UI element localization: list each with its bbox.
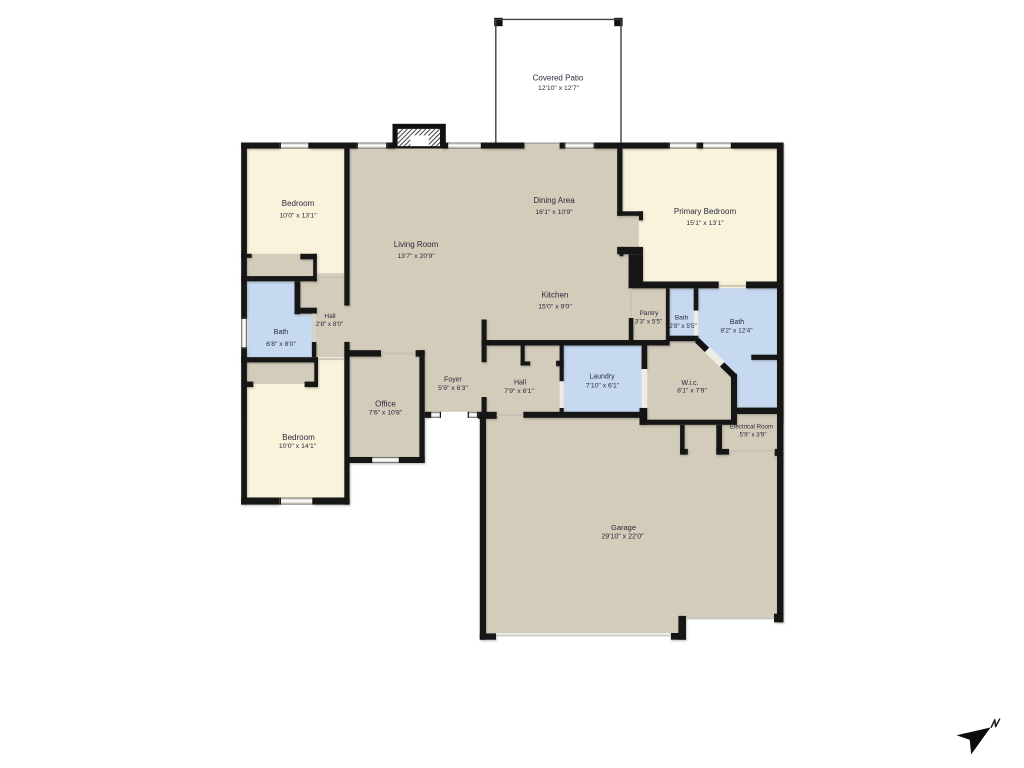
svg-text:Office: Office xyxy=(375,400,396,409)
svg-text:5'9" x 6'3": 5'9" x 6'3" xyxy=(438,385,468,392)
svg-text:Dining Area: Dining Area xyxy=(533,196,575,205)
svg-text:Covered Patio: Covered Patio xyxy=(533,74,584,83)
svg-text:15'0" x 9'0": 15'0" x 9'0" xyxy=(538,304,572,311)
svg-text:Pantry: Pantry xyxy=(640,310,660,317)
svg-text:7'10" x 6'1": 7'10" x 6'1" xyxy=(586,383,620,390)
svg-text:7'6" x 10'8": 7'6" x 10'8" xyxy=(369,410,403,417)
svg-text:16'1" x 10'9": 16'1" x 10'9" xyxy=(535,209,573,216)
svg-text:10'0" x 14'1": 10'0" x 14'1" xyxy=(279,443,317,450)
svg-text:Hall: Hall xyxy=(324,313,336,320)
svg-text:Electrical Room: Electrical Room xyxy=(730,424,773,431)
svg-text:12'10" x 12'7": 12'10" x 12'7" xyxy=(538,85,580,92)
svg-text:Bath: Bath xyxy=(274,329,289,336)
svg-text:Foyer: Foyer xyxy=(444,377,463,384)
svg-text:Living Room: Living Room xyxy=(394,240,439,249)
svg-text:13'7" x 20'9": 13'7" x 20'9" xyxy=(397,253,435,260)
svg-text:2'8" x 5'5": 2'8" x 5'5" xyxy=(669,323,697,330)
svg-text:6'8" x 8'0": 6'8" x 8'0" xyxy=(266,341,296,348)
svg-text:2'8" x 8'0": 2'8" x 8'0" xyxy=(316,321,344,328)
svg-text:W.i.c.: W.i.c. xyxy=(681,380,698,387)
svg-text:3'3" x 5'5": 3'3" x 5'5" xyxy=(635,319,663,326)
svg-text:Primary Bedroom: Primary Bedroom xyxy=(674,207,737,216)
svg-text:Laundry: Laundry xyxy=(589,374,615,381)
svg-text:8'1" x 7'9": 8'1" x 7'9" xyxy=(677,388,707,395)
svg-text:Hall: Hall xyxy=(514,380,527,387)
svg-text:29'10" x 22'0": 29'10" x 22'0" xyxy=(601,533,644,540)
svg-text:Bedroom: Bedroom xyxy=(282,433,315,442)
svg-text:Garage: Garage xyxy=(611,523,636,532)
svg-text:15'1" x 13'1": 15'1" x 13'1" xyxy=(686,220,724,227)
svg-text:Bath: Bath xyxy=(675,314,689,321)
svg-text:Bedroom: Bedroom xyxy=(282,199,315,208)
svg-text:Bath: Bath xyxy=(730,319,745,326)
svg-text:10'0" x 13'1": 10'0" x 13'1" xyxy=(279,213,317,220)
svg-text:Kitchen: Kitchen xyxy=(542,291,569,300)
svg-text:7'9" x 6'1": 7'9" x 6'1" xyxy=(504,388,534,395)
svg-text:5'9" x 3'9": 5'9" x 3'9" xyxy=(739,432,766,439)
svg-text:8'2" x 12'4": 8'2" x 12'4" xyxy=(720,328,753,335)
